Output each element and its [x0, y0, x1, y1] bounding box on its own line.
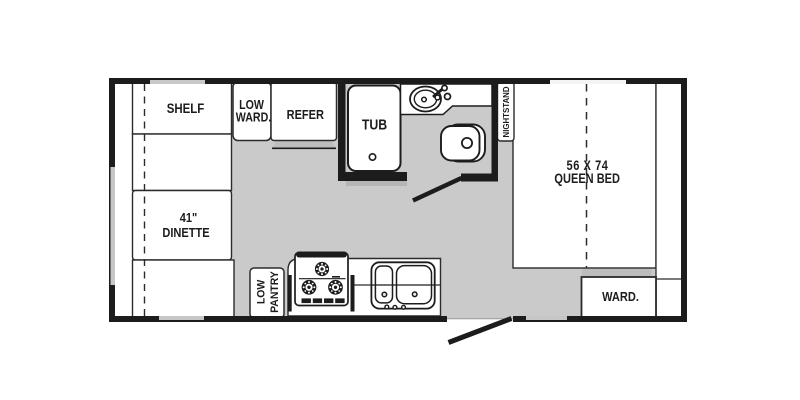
svg-text:PANTRY: PANTRY [269, 271, 281, 313]
svg-text:REFER: REFER [287, 107, 325, 122]
svg-text:WARD.: WARD. [236, 109, 272, 124]
svg-text:DINETTE: DINETTE [162, 225, 209, 240]
svg-text:NIGHTSTAND: NIGHTSTAND [502, 86, 511, 137]
svg-text:WARD.: WARD. [602, 289, 639, 304]
svg-text:QUEEN BED: QUEEN BED [554, 171, 620, 186]
svg-text:LOW: LOW [255, 279, 267, 304]
svg-text:TUB: TUB [362, 117, 388, 133]
svg-text:SHELF: SHELF [167, 101, 205, 116]
svg-text:41": 41" [180, 210, 198, 225]
